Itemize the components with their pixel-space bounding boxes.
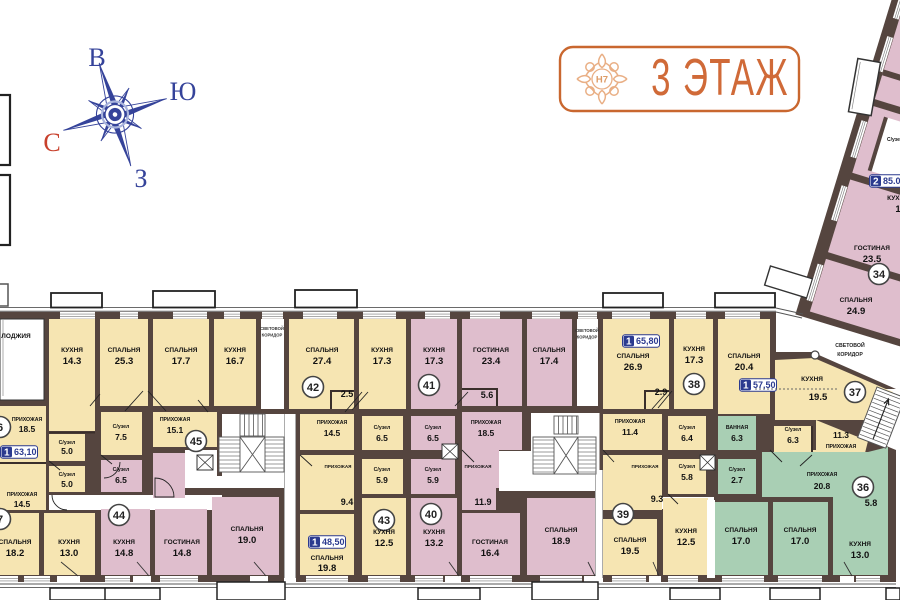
svg-text:КОРИДОР: КОРИДОР [577,335,598,340]
svg-text:С/узел: С/узел [113,424,130,430]
svg-text:18.9: 18.9 [552,536,571,547]
svg-text:КУХНЯ: КУХНЯ [224,347,246,354]
svg-text:КУХНЯ: КУХНЯ [423,347,445,354]
svg-text:ПРИХОЖАЯ: ПРИХОЖАЯ [317,420,348,426]
svg-text:КУХНЯ: КУХНЯ [113,539,135,546]
svg-text:23.4: 23.4 [482,356,501,367]
svg-text:20.4: 20.4 [735,362,754,373]
svg-text:11.3: 11.3 [833,430,849,440]
svg-text:9.3: 9.3 [651,494,664,504]
svg-text:С/узел: С/узел [59,472,76,478]
svg-text:ПРИХОЖАЯ: ПРИХОЖАЯ [615,419,646,425]
svg-text:С/узел: С/узел [679,425,696,431]
svg-text:ПРИХОЖАЯ: ПРИХОЖАЯ [160,417,191,423]
svg-text:6.3: 6.3 [787,435,799,445]
svg-text:ЛОДЖИЯ: ЛОДЖИЯ [1,333,31,340]
svg-text:1: 1 [626,336,632,347]
svg-text:14.8: 14.8 [115,548,134,559]
svg-text:С/узел: С/узел [729,467,746,473]
svg-text:26.9: 26.9 [624,362,643,373]
svg-text:39: 39 [617,509,629,521]
svg-text:20.8: 20.8 [814,481,831,491]
svg-text:5.9: 5.9 [427,475,439,485]
svg-text:6.5: 6.5 [427,433,439,443]
svg-text:КУХНЯ: КУХНЯ [683,346,705,353]
svg-text:45: 45 [190,436,202,448]
svg-text:2.7: 2.7 [731,475,743,485]
svg-text:КУХНЯ: КУХНЯ [887,195,900,202]
svg-text:КУХНЯ: КУХНЯ [423,529,445,536]
svg-text:13.0: 13.0 [851,550,870,561]
svg-text:1: 1 [4,447,10,458]
svg-text:СПАЛЬНЯ: СПАЛЬНЯ [108,347,141,354]
svg-text:1: 1 [312,537,318,548]
svg-text:ПРИХОЖАЯ: ПРИХОЖАЯ [12,417,43,423]
svg-text:С/узел: С/узел [374,467,391,473]
svg-text:С/узел: С/узел [425,467,442,473]
svg-text:16.7: 16.7 [226,356,245,367]
svg-text:43: 43 [378,515,390,527]
svg-text:14.5: 14.5 [14,499,31,509]
svg-text:3 ЭТАЖ: 3 ЭТАЖ [651,49,789,107]
svg-text:СПАЛЬНЯ: СПАЛЬНЯ [165,347,198,354]
svg-text:15.1: 15.1 [167,425,184,435]
svg-text:25.3: 25.3 [115,356,134,367]
svg-text:5.8: 5.8 [865,498,878,508]
svg-text:С: С [43,128,60,157]
svg-text:З: З [134,164,147,193]
svg-text:КУХНЯ: КУХНЯ [849,541,871,548]
svg-text:ПРИХОЖАЯ: ПРИХОЖАЯ [471,420,502,426]
svg-text:14.3: 14.3 [63,356,82,367]
svg-text:С/узел: С/узел [887,137,900,143]
svg-text:СПАЛЬНЯ: СПАЛЬНЯ [533,347,566,354]
svg-text:СПАЛЬНЯ: СПАЛЬНЯ [231,526,264,533]
svg-text:12.5: 12.5 [677,537,696,548]
svg-text:6.4: 6.4 [681,433,693,443]
svg-text:18.5: 18.5 [478,428,495,438]
svg-text:11.9: 11.9 [474,497,491,507]
svg-text:С/узел: С/узел [785,427,802,433]
svg-text:5.0: 5.0 [61,479,73,489]
svg-text:17.3: 17.3 [425,356,444,367]
svg-text:Ю: Ю [170,77,197,106]
svg-text:48,50: 48,50 [322,537,345,547]
svg-text:17.3: 17.3 [685,355,704,366]
svg-text:2: 2 [873,176,879,187]
svg-text:17.7: 17.7 [172,356,191,367]
svg-text:ПРИХОЖАЯ: ПРИХОЖАЯ [826,444,857,450]
svg-text:18.5: 18.5 [19,424,36,434]
svg-text:44: 44 [113,510,126,522]
svg-text:СПАЛЬНЯ: СПАЛЬНЯ [728,353,761,360]
svg-text:6.5: 6.5 [376,433,388,443]
svg-text:СПАЛЬНЯ: СПАЛЬНЯ [840,297,873,304]
svg-text:6.3: 6.3 [731,433,743,443]
svg-text:СПАЛЬНЯ: СПАЛЬНЯ [617,353,650,360]
svg-text:5.9: 5.9 [376,475,388,485]
svg-text:40: 40 [425,509,437,521]
svg-text:2.9: 2.9 [655,387,668,397]
svg-text:17.0: 17.0 [732,536,751,547]
svg-text:34: 34 [873,269,886,281]
svg-text:КУХНЯ: КУХНЯ [58,539,80,546]
svg-text:13.0: 13.0 [60,548,79,559]
svg-text:17.4: 17.4 [540,356,559,367]
svg-text:ГОСТИНАЯ: ГОСТИНАЯ [854,245,890,252]
svg-text:5.0: 5.0 [61,446,73,456]
svg-text:ВАННАЯ: ВАННАЯ [726,425,748,431]
svg-text:1: 1 [743,380,749,391]
svg-text:27.4: 27.4 [313,356,332,367]
svg-text:КУХНЯ: КУХНЯ [801,376,823,383]
svg-text:ПРИХОЖАЯ: ПРИХОЖАЯ [325,464,352,469]
svg-text:16.4: 16.4 [481,548,500,559]
svg-text:5.6: 5.6 [481,390,494,400]
svg-text:17.3: 17.3 [373,356,392,367]
svg-text:2.5: 2.5 [341,389,354,399]
svg-text:СПАЛЬНЯ: СПАЛЬНЯ [614,537,647,544]
svg-text:7.5: 7.5 [115,432,127,442]
svg-text:КУХНЯ: КУХНЯ [61,347,83,354]
svg-text:24.9: 24.9 [847,306,866,317]
svg-text:6.5: 6.5 [115,475,127,485]
svg-text:18.2: 18.2 [6,548,25,559]
svg-text:63,10: 63,10 [14,447,37,457]
svg-text:СПАЛЬНЯ: СПАЛЬНЯ [725,527,758,534]
svg-text:5.8: 5.8 [681,472,693,482]
svg-text:СПАЛЬНЯ: СПАЛЬНЯ [0,539,32,546]
svg-text:КОРИДОР: КОРИДОР [262,333,283,338]
svg-text:С/узел: С/узел [374,425,391,431]
svg-text:КУХНЯ: КУХНЯ [675,528,697,535]
svg-text:ПРИХОЖАЯ: ПРИХОЖАЯ [7,492,38,498]
svg-text:ГОСТИНАЯ: ГОСТИНАЯ [164,539,200,546]
svg-text:КОРИДОР: КОРИДОР [837,352,863,358]
svg-text:14.8: 14.8 [173,548,192,559]
svg-text:17.0: 17.0 [791,536,810,547]
svg-text:38: 38 [688,379,700,391]
svg-text:7: 7 [0,514,3,526]
svg-text:СВЕТОВОЙ: СВЕТОВОЙ [260,326,284,331]
svg-text:В: В [88,43,105,72]
svg-text:6: 6 [0,422,3,434]
svg-text:КУХНЯ: КУХНЯ [373,529,395,536]
svg-text:С/узел: С/узел [679,464,696,470]
svg-text:11.4: 11.4 [622,427,638,437]
svg-text:19.5: 19.5 [621,546,640,557]
svg-text:12.5: 12.5 [375,538,394,549]
svg-text:14.5: 14.5 [324,428,341,438]
svg-text:41: 41 [423,380,435,392]
svg-text:19.5: 19.5 [809,392,828,403]
svg-text:36: 36 [857,482,869,494]
svg-text:СПАЛЬНЯ: СПАЛЬНЯ [306,347,339,354]
svg-text:СВЕТОВОЙ: СВЕТОВОЙ [575,328,599,333]
svg-text:КУХНЯ: КУХНЯ [371,347,393,354]
svg-text:1: 1 [895,204,900,215]
svg-text:85.00: 85.00 [883,176,900,186]
svg-text:ПРИХОЖАЯ: ПРИХОЖАЯ [807,472,838,478]
svg-text:13.2: 13.2 [425,538,444,549]
svg-text:С/узел: С/узел [113,467,130,473]
svg-text:42: 42 [307,382,319,394]
svg-text:СПАЛЬНЯ: СПАЛЬНЯ [311,555,344,562]
svg-text:ГОСТИНАЯ: ГОСТИНАЯ [472,539,508,546]
svg-text:СВЕТОВОЙ: СВЕТОВОЙ [835,341,865,349]
svg-text:Н7: Н7 [596,75,608,86]
svg-text:СПАЛЬНЯ: СПАЛЬНЯ [784,527,817,534]
svg-text:19.8: 19.8 [318,563,337,574]
svg-text:СПАЛЬНЯ: СПАЛЬНЯ [545,527,578,534]
svg-text:65,80: 65,80 [636,336,659,346]
svg-text:ГОСТИНАЯ: ГОСТИНАЯ [473,347,509,354]
svg-text:ПРИХОЖАЯ: ПРИХОЖАЯ [632,464,659,469]
svg-text:19.0: 19.0 [238,535,257,546]
svg-text:ПРИХОЖАЯ: ПРИХОЖАЯ [465,464,492,469]
svg-text:9.4: 9.4 [341,497,354,507]
svg-text:С/узел: С/узел [425,425,442,431]
svg-text:37: 37 [849,387,861,399]
